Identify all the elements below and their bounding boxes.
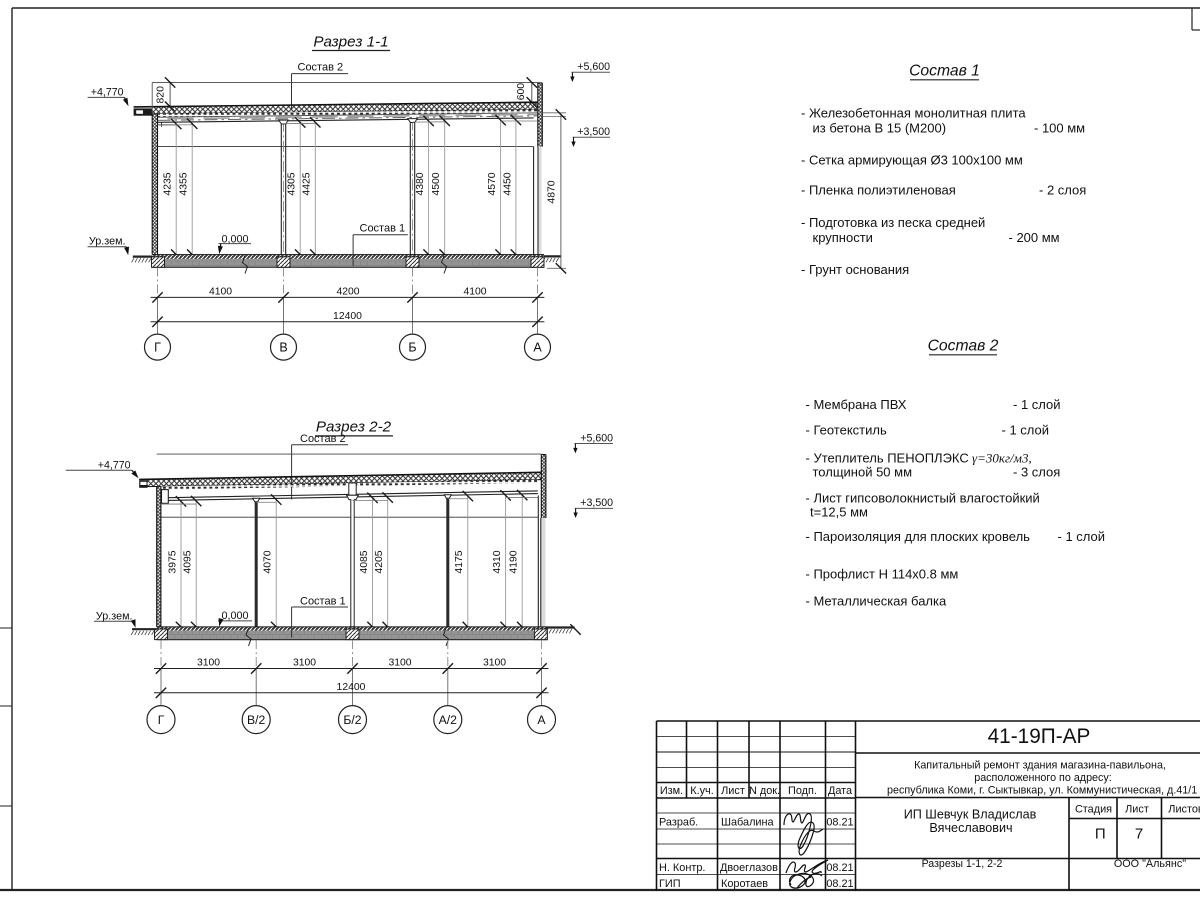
svg-text:- Грунт основания: - Грунт основания bbox=[801, 262, 909, 277]
svg-text:γ=30кг/м3,: γ=30кг/м3, bbox=[972, 451, 1032, 466]
svg-text:Лист: Лист bbox=[721, 785, 745, 797]
svg-text:Подп.: Подп. bbox=[788, 785, 817, 797]
svg-text:- 3 слоя: - 3 слоя bbox=[1013, 465, 1060, 480]
svg-text:08.21: 08.21 bbox=[826, 878, 853, 890]
svg-text:Вячеславович: Вячеславович bbox=[929, 821, 1012, 835]
svg-text:+5,600: +5,600 bbox=[580, 432, 613, 444]
svg-text:ООО "Альянс": ООО "Альянс" bbox=[1114, 858, 1186, 870]
svg-text:В/2: В/2 bbox=[247, 713, 266, 727]
svg-text:Разраб.: Разраб. bbox=[659, 817, 698, 829]
svg-text:4380: 4380 bbox=[415, 172, 426, 195]
svg-text:08.21: 08.21 bbox=[826, 862, 853, 874]
svg-text:Б: Б bbox=[408, 341, 416, 355]
svg-text:4425: 4425 bbox=[302, 172, 313, 195]
svg-text:ИП Шевчук Владислав: ИП Шевчук Владислав bbox=[904, 808, 1037, 822]
svg-text:Изм.: Изм. bbox=[660, 785, 683, 797]
svg-text:толщиной 50 мм: толщиной 50 мм bbox=[813, 465, 913, 480]
svg-text:+5,600: +5,600 bbox=[577, 61, 610, 73]
svg-text:Стадия: Стадия bbox=[1075, 804, 1112, 816]
svg-text:- Подготовка из песка средней: - Подготовка из песка средней bbox=[801, 215, 985, 230]
svg-text:4305: 4305 bbox=[287, 172, 298, 195]
svg-text:+3,500: +3,500 bbox=[577, 126, 610, 138]
svg-text:- Железобетонная монолитная п: - Железобетонная монолитная плита bbox=[801, 106, 1026, 121]
svg-text:- 1 слой: - 1 слой bbox=[1058, 529, 1106, 544]
svg-text:3100: 3100 bbox=[293, 658, 316, 669]
svg-text:+3,500: +3,500 bbox=[580, 497, 613, 509]
svg-text:4100: 4100 bbox=[209, 286, 232, 297]
svg-text:Г: Г bbox=[154, 341, 161, 355]
svg-text:расположенного по адресу:: расположенного по адресу: bbox=[974, 772, 1112, 784]
svg-text:4570: 4570 bbox=[487, 172, 498, 195]
svg-text:В: В bbox=[279, 341, 287, 355]
svg-text:4200: 4200 bbox=[336, 286, 359, 297]
svg-text:4355: 4355 bbox=[179, 172, 190, 195]
svg-text:4450: 4450 bbox=[502, 172, 513, 195]
svg-text:крупности: крупности bbox=[813, 230, 873, 245]
svg-text:- Пароизоляция для плоских кро: - Пароизоляция для плоских кровель bbox=[806, 529, 1031, 544]
svg-text:- Металлическая балка: - Металлическая балка bbox=[806, 594, 947, 609]
svg-text:- 200 мм: - 200 мм bbox=[1009, 230, 1060, 245]
svg-text:Коротаев: Коротаев bbox=[721, 878, 768, 890]
svg-text:Состав 1: Состав 1 bbox=[300, 595, 346, 607]
svg-text:3100: 3100 bbox=[197, 658, 220, 669]
svg-text:- Геотекстиль: - Геотекстиль bbox=[806, 423, 887, 438]
svg-text:Лист: Лист bbox=[1125, 804, 1149, 816]
svg-text:N док.: N док. bbox=[749, 785, 780, 797]
svg-text:+4,770: +4,770 bbox=[91, 86, 124, 98]
svg-text:Н. Контр.: Н. Контр. bbox=[659, 862, 705, 874]
svg-text:Листов: Листов bbox=[1168, 804, 1200, 816]
svg-text:4310: 4310 bbox=[492, 550, 503, 573]
svg-text:А: А bbox=[533, 341, 542, 355]
svg-text:республика Коми, г. Сыктывкар,: республика Коми, г. Сыктывкар, ул. Комму… bbox=[887, 785, 1197, 797]
svg-text:А/2: А/2 bbox=[439, 713, 458, 727]
svg-text:- 2 слоя: - 2 слоя bbox=[1039, 183, 1086, 198]
svg-text:7: 7 bbox=[1135, 826, 1143, 843]
svg-text:Состав 2: Состав 2 bbox=[300, 433, 346, 445]
svg-text:+4,770: +4,770 bbox=[98, 459, 131, 471]
svg-text:4085: 4085 bbox=[359, 550, 370, 573]
svg-text:Г: Г bbox=[158, 713, 165, 727]
svg-text:- Профлист Н 114х0.8 мм: - Профлист Н 114х0.8 мм bbox=[806, 567, 959, 582]
svg-text:Ур.зем.: Ур.зем. bbox=[96, 610, 133, 622]
svg-text:41-19П-АР: 41-19П-АР bbox=[988, 725, 1091, 748]
svg-text:ГИП: ГИП bbox=[659, 878, 681, 890]
svg-text:4100: 4100 bbox=[463, 286, 486, 297]
svg-text:Шабалина: Шабалина bbox=[721, 817, 775, 829]
svg-text:- 100 мм: - 100 мм bbox=[1034, 121, 1085, 136]
svg-text:- Мембрана ПВХ: - Мембрана ПВХ bbox=[806, 397, 907, 412]
svg-text:- Сетка армирующая Ø3 100х100: - Сетка армирующая Ø3 100х100 мм bbox=[801, 153, 1023, 168]
svg-text:600: 600 bbox=[516, 83, 527, 101]
svg-text:4175: 4175 bbox=[454, 550, 465, 573]
svg-text:- Пленка полиэтиленовая: - Пленка полиэтиленовая bbox=[801, 183, 956, 198]
svg-text:12400: 12400 bbox=[337, 682, 366, 693]
svg-text:П: П bbox=[1095, 826, 1106, 843]
svg-text:08.21: 08.21 bbox=[826, 817, 853, 829]
svg-text:4190: 4190 bbox=[509, 550, 520, 573]
svg-text:4070: 4070 bbox=[263, 550, 274, 573]
svg-text:4500: 4500 bbox=[431, 172, 442, 195]
svg-text:Капитальный ремонт здания мага: Капитальный ремонт здания магазина-павил… bbox=[914, 760, 1166, 772]
svg-text:820: 820 bbox=[156, 86, 167, 104]
svg-text:Разрезы 1-1, 2-2: Разрезы 1-1, 2-2 bbox=[922, 858, 1003, 870]
svg-text:Б/2: Б/2 bbox=[343, 713, 361, 727]
svg-text:3975: 3975 bbox=[167, 550, 178, 573]
svg-text:Состав 2: Состав 2 bbox=[298, 62, 344, 74]
svg-text:А: А bbox=[537, 713, 546, 727]
svg-text:Состав 2: Состав 2 bbox=[928, 338, 999, 355]
svg-text:4095: 4095 bbox=[183, 550, 194, 573]
svg-text:3100: 3100 bbox=[388, 658, 411, 669]
svg-text:Дата: Дата bbox=[828, 785, 853, 797]
svg-text:из бетона В 15 (М200): из бетона В 15 (М200) bbox=[813, 121, 947, 136]
svg-text:Двоеглазов: Двоеглазов bbox=[720, 862, 778, 874]
svg-text:- 1 слой: - 1 слой bbox=[1002, 423, 1050, 438]
svg-text:Состав 1: Состав 1 bbox=[360, 223, 406, 235]
svg-text:- 1 слой: - 1 слой bbox=[1013, 397, 1061, 412]
svg-text:- Лист гипсоволокнистый влагос: - Лист гипсоволокнистый влагостойкий bbox=[806, 491, 1040, 506]
svg-text:Ур.зем.: Ур.зем. bbox=[89, 236, 126, 248]
svg-text:3100: 3100 bbox=[483, 658, 506, 669]
svg-text:t=12,5 мм: t=12,5 мм bbox=[810, 505, 868, 520]
svg-text:0,000: 0,000 bbox=[221, 610, 248, 622]
svg-text:4235: 4235 bbox=[163, 172, 174, 195]
svg-text:К.уч.: К.уч. bbox=[690, 785, 714, 797]
svg-text:12400: 12400 bbox=[333, 311, 362, 322]
svg-text:4870: 4870 bbox=[546, 180, 557, 203]
svg-text:Разрез 1-1: Разрез 1-1 bbox=[313, 34, 388, 51]
svg-text:Состав 1: Состав 1 bbox=[909, 63, 980, 80]
svg-text:4205: 4205 bbox=[374, 550, 385, 573]
svg-text:- Утеплитель ПЕНОПЛЭКС: - Утеплитель ПЕНОПЛЭКС bbox=[806, 451, 969, 466]
